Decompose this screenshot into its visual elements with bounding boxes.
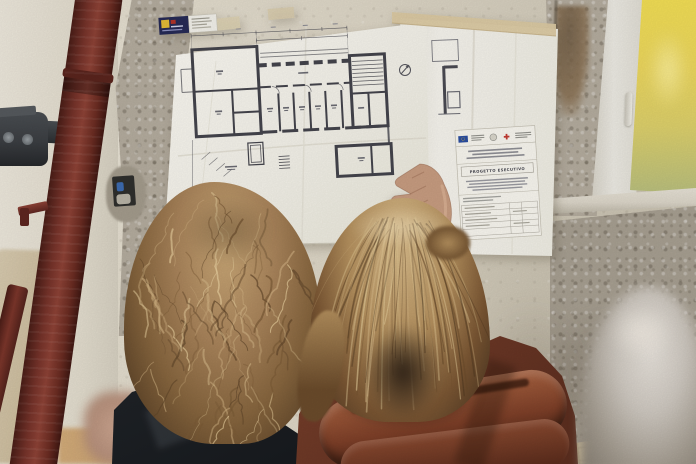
electrical-wires: [116, 182, 124, 191]
hair-strand: [170, 229, 173, 262]
hair-tuft-over-wrist: [426, 226, 470, 260]
under-hair-shadow: [368, 326, 438, 418]
pole-hook: [18, 200, 52, 226]
masking-tape-mid: [268, 7, 295, 20]
hair-strand: [251, 275, 270, 311]
glass-bloom: [648, 30, 688, 110]
hair-strand: [176, 292, 209, 340]
pole-clamp: [0, 112, 48, 166]
hair-strand: [186, 385, 214, 444]
hair-strand: [194, 424, 202, 444]
hair-strand: [238, 287, 247, 324]
hook-drop: [20, 208, 29, 226]
clamp-bolt-hole-2: [22, 134, 33, 145]
hair-strand: [277, 320, 291, 354]
hair-strand: [202, 406, 221, 444]
reveal-damage-patch: [556, 6, 590, 116]
crown-shadow: [184, 196, 274, 266]
state-emblem-icon: [490, 134, 497, 141]
hair-strand: [271, 351, 282, 397]
clamp-lip: [0, 106, 36, 118]
construction-site-photo: PROGETTO ESECUTIVO: [0, 0, 696, 464]
permit-sticker: [158, 14, 217, 35]
foreground-hair-highlight: [612, 306, 672, 358]
window-handle: [624, 92, 632, 126]
electrical-box: [112, 175, 136, 206]
clamp-bolt-hole: [3, 132, 14, 143]
electrical-fitting: [116, 194, 131, 205]
hair-strand: [151, 370, 166, 412]
hair-strand: [203, 350, 210, 385]
